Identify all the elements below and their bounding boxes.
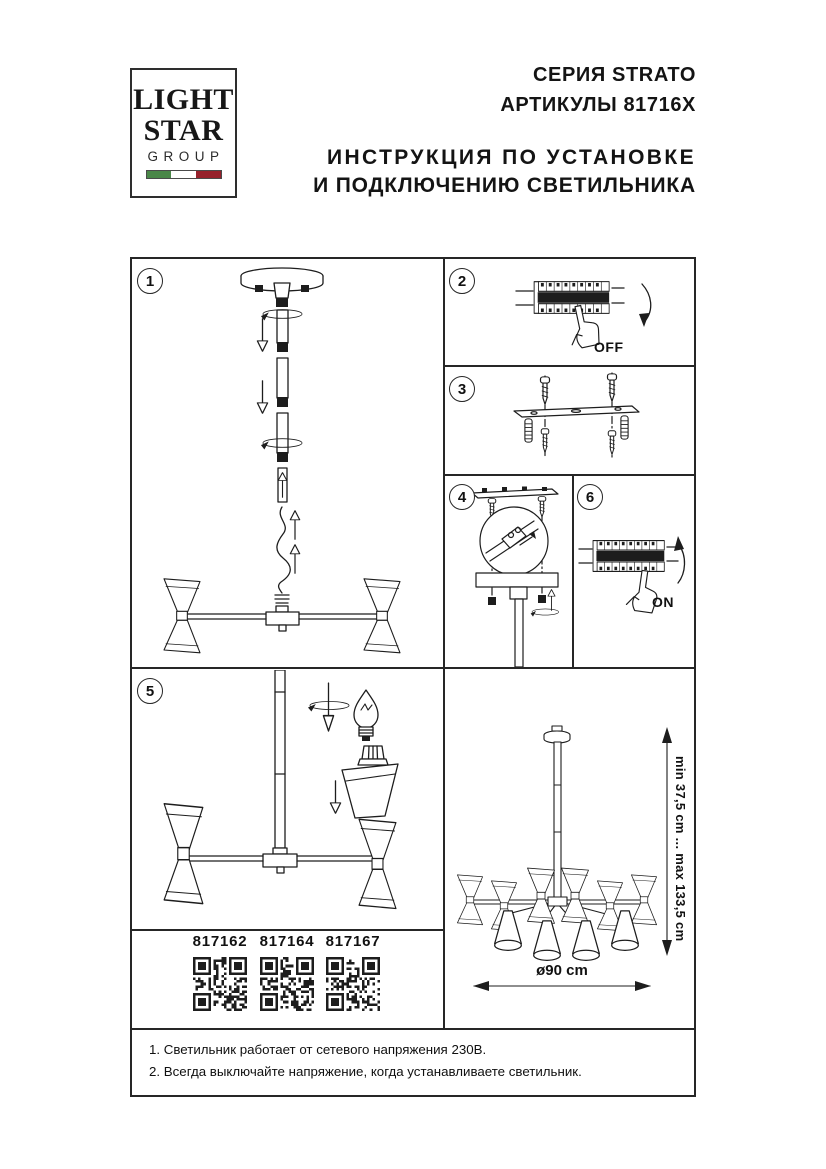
dimensions-diagram: min 37,5 cm ... max 133,5 cm ø90 cm: [446, 670, 694, 1026]
step-6-badge: 6: [577, 484, 603, 510]
diameter-dimension-label: ø90 cm: [502, 962, 622, 979]
up-arrow-icon: [290, 511, 299, 540]
circuit-breaker-icon: [534, 282, 609, 314]
front-shade: [534, 921, 561, 960]
shade: [528, 868, 555, 923]
instruction-title: ИНСТРУКЦИЯ ПО УСТАНОВКЕ И ПОДКЛЮЧЕНИЮ СВ…: [313, 144, 696, 200]
rod: [275, 670, 285, 848]
manual-page: LIGHT STAR GROUP СЕРИЯ STRATO АРТИКУЛЫ 8…: [0, 0, 826, 1169]
fixture-hub: [185, 848, 375, 873]
shade: [562, 868, 589, 923]
title-block: СЕРИЯ STRATO АРТИКУЛЫ 81716X ИНСТРУКЦИЯ …: [313, 60, 696, 200]
fixture-hub: [187, 606, 377, 631]
lightstar-logo: LIGHT STAR GROUP: [130, 68, 237, 198]
wire: [275, 507, 290, 603]
wall-anchor-icon: [525, 419, 532, 442]
screw-icon: [541, 377, 550, 404]
instruction-line-2: И ПОДКЛЮЧЕНИЮ СВЕТИЛЬНИКА: [313, 172, 696, 200]
diameter-dimension-arrow: [473, 981, 651, 991]
screw-icon: [608, 374, 617, 401]
flag-green-band: [147, 171, 172, 178]
chandelier-drawing: [457, 726, 656, 960]
upper-cone-shade: [342, 764, 398, 818]
shade-left: [164, 804, 203, 904]
divider-step1-step5: [130, 667, 445, 669]
rod: [515, 599, 523, 667]
shade-right: [364, 579, 400, 653]
article-number: 817162: [185, 933, 255, 950]
up-arrow-icon: [290, 545, 299, 574]
articles-title: АРТИКУЛЫ 81716X: [313, 90, 696, 120]
ceiling-canopy: [241, 268, 323, 307]
up-arrow-icon: [548, 589, 555, 610]
article-number: 817167: [318, 933, 388, 950]
article-column: 817162: [185, 933, 255, 1011]
step-2-badge: 2: [449, 268, 475, 294]
candle-bulb: [354, 690, 378, 741]
article-column: 817167: [318, 933, 388, 1011]
down-arrow-icon: [323, 683, 333, 731]
step-5-badge: 5: [137, 678, 163, 704]
shade-left: [164, 579, 200, 653]
qr-code: [193, 957, 247, 1011]
socket-cup: [358, 746, 388, 765]
divider-step4-dimensions: [443, 667, 696, 669]
down-arrow-icon: [257, 381, 267, 414]
step-2-diagram: OFF: [446, 260, 694, 364]
article-number: 817164: [252, 933, 322, 950]
screw-icon: [608, 431, 616, 455]
curved-arrow-up: [678, 545, 685, 583]
step-1-badge: 1: [137, 268, 163, 294]
note-line-1: 1. Светильник работает от сетевого напря…: [149, 1039, 694, 1061]
flag-red-band: [196, 171, 221, 178]
circuit-breaker-icon: [593, 541, 664, 572]
logo-text-star: STAR: [132, 115, 235, 146]
step-3-diagram: [446, 368, 694, 472]
qr-code: [326, 957, 380, 1011]
down-arrow-icon: [330, 781, 340, 814]
height-dimension-label: min 37,5 cm ... max 133,5 cm: [673, 756, 688, 938]
qr-section: 817162 817164 817167: [133, 931, 443, 1026]
logo-text-group: GROUP: [132, 149, 235, 164]
step-4-badge: 4: [449, 484, 475, 510]
rotate-arrow-icon: [531, 609, 559, 617]
article-column: 817164: [252, 933, 322, 1011]
notes: 1. Светильник работает от сетевого напря…: [133, 1030, 694, 1095]
screw-icon: [538, 497, 546, 517]
canopy-plate: [476, 573, 558, 587]
flag-white-band: [171, 171, 196, 178]
divider-step3-step4: [443, 474, 696, 476]
instruction-line-1: ИНСТРУКЦИЯ ПО УСТАНОВКЕ: [313, 144, 696, 172]
height-dimension-arrow: [662, 727, 672, 956]
italy-flag-stripe: [146, 170, 222, 179]
divider-step2-step3: [443, 365, 696, 367]
front-shade: [573, 921, 600, 960]
step-5-diagram: [133, 670, 443, 926]
shade-right: [359, 819, 396, 908]
divider-vertical-main: [443, 257, 445, 1029]
screw-icon: [541, 429, 549, 453]
logo-text-light: LIGHT: [132, 84, 235, 115]
wall-anchor-icon: [621, 416, 628, 439]
series-title: СЕРИЯ STRATO: [313, 60, 696, 90]
qr-code: [260, 957, 314, 1011]
step-3-badge: 3: [449, 376, 475, 402]
note-line-2: 2. Всегда выключайте напряжение, когда у…: [149, 1061, 694, 1083]
step-1-diagram: [133, 260, 443, 666]
breaker-off-label: OFF: [594, 339, 624, 355]
breaker-on-label: ON: [652, 594, 674, 610]
down-arrow-icon: [257, 319, 267, 352]
